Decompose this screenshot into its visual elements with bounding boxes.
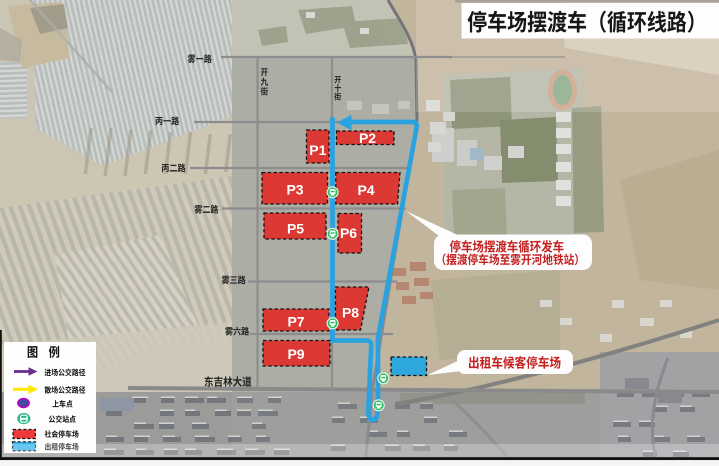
svg-text:P4: P4 xyxy=(357,182,374,198)
svg-text:P9: P9 xyxy=(287,346,304,362)
svg-text:P5: P5 xyxy=(287,221,304,237)
svg-text:P7: P7 xyxy=(287,314,304,330)
svg-text:P6: P6 xyxy=(340,225,357,241)
svg-text:P2: P2 xyxy=(359,130,376,146)
svg-text:P1: P1 xyxy=(309,142,326,158)
svg-text:P8: P8 xyxy=(342,305,359,321)
svg-text:P3: P3 xyxy=(286,182,303,198)
